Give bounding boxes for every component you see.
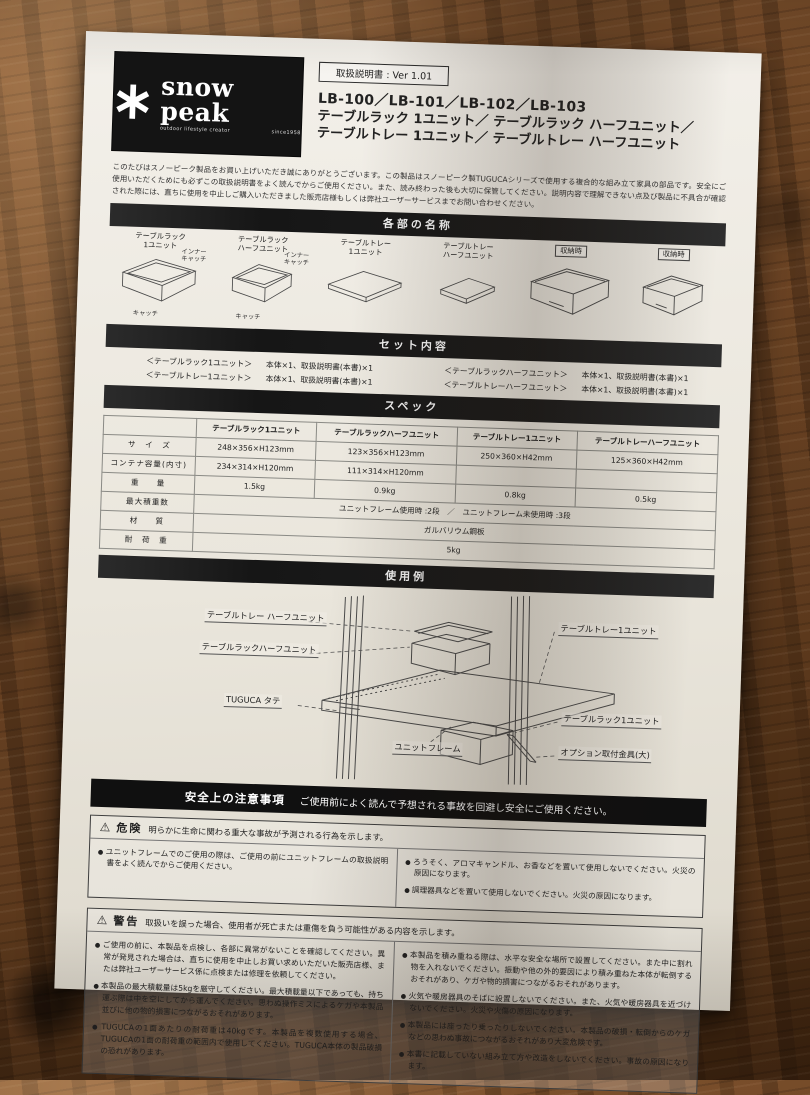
warning-box: ⚠ 警告 取扱いを誤った場合、使用者が死亡または重傷を負う可能性がある内容を示し… <box>82 908 703 1094</box>
stored-badge: 収納時 <box>555 244 587 258</box>
warning-label: 警告 <box>113 913 140 930</box>
set-item-name: ＜テーブルトレーハーフユニット＞ <box>444 379 568 394</box>
safety-title: 安全上の注意事項 <box>185 789 285 806</box>
part-item-stored-small: 収納時 <box>620 246 726 337</box>
warning-triangle-icon: ⚠ <box>96 914 107 926</box>
danger-label: 危険 <box>116 819 143 836</box>
danger-description: 明らかに生命に関わる重大な事故が予測される行為を示します。 <box>148 823 388 843</box>
snowpeak-asterisk-icon <box>113 82 152 121</box>
danger-bullet: 調理器具などを置いて使用しないでください。火災の原因になります。 <box>404 884 695 906</box>
warning-bullet: 本製品を積み重ねる際は、水平な安全な場所で設置してください。また中に割れ物を入れ… <box>401 949 693 994</box>
spec-row-label: 耐 荷 重 <box>99 529 193 551</box>
parts-row: テーブルラック 1ユニット インナーキャッチ キャッチ テーブルラック ハーフユ… <box>107 229 726 337</box>
manual-version-box: 取扱説明書 : Ver 1.01 <box>319 62 450 86</box>
stored-badge: 収納時 <box>657 248 689 262</box>
inner-catch-label: インナーキャッチ <box>181 248 212 265</box>
usage-label-tuguca: TUGUCA タテ <box>224 693 283 709</box>
part-label: ハーフユニット <box>417 249 520 262</box>
set-item-name: ＜テーブルラックハーフユニット＞ <box>444 365 568 380</box>
warning-left-column: ご使用の前に、本製品を点検し、各部に異常がないことを確認してください。異常が発見… <box>83 932 394 1083</box>
warning-bullet: 火気や暖房器具のそばに設置しないでください。また、火気や暖房器具を近づけないでく… <box>400 990 691 1023</box>
tray-flat-figure <box>318 257 412 310</box>
tray-half-flat-figure <box>420 261 514 314</box>
set-item-qty: 本体×1、取扱説明書(本書)×1 <box>581 369 688 384</box>
catch-label: キャッチ <box>235 314 260 323</box>
brand-since: since1958 <box>271 130 300 136</box>
snowpeak-logo: snow peak outdoor lifestyle creator sinc… <box>112 52 303 156</box>
usage-diagram: テーブルトレー ハーフユニット テーブルラックハーフユニット テーブルトレー1ユ… <box>92 580 714 790</box>
logo-wordmark: snow peak outdoor lifestyle creator sinc… <box>160 74 303 137</box>
part-item-tray1: テーブルトレー 1ユニット <box>312 236 418 327</box>
header-titles: 取扱説明書 : Ver 1.01 LB-100／LB-101／LB-102／LB… <box>316 59 731 173</box>
photo-of-manual: { "logo": { "brand": "snow peak", "tagli… <box>0 0 810 1080</box>
safety-subtitle: ご使用前によく読んで予想される事故を回避し安全にご使用ください。 <box>300 796 613 817</box>
catch-label: キャッチ <box>133 310 158 319</box>
danger-box: ⚠ 危険 明らかに生命に関わる重大な事故が予測される行為を示します。 ユニットフ… <box>87 814 705 918</box>
stored-closed-box-small-figure <box>625 262 719 323</box>
part-label: 1ユニット <box>314 246 417 259</box>
spec-table: テーブルラック1ユニット テーブルラックハーフユニット テーブルトレー1ユニット… <box>99 414 719 568</box>
set-item-qty: 本体×1、取扱説明書(本書)×1 <box>581 383 688 398</box>
part-item-rack-half: テーブルラック ハーフユニット インナーキャッチ キャッチ <box>209 233 315 324</box>
warning-bullet: TUGUCAの1面あたりの耐荷重は40kgです。本製品を複数使用する場合、TUG… <box>91 1021 383 1066</box>
usage-label-unit-frame: ユニットフレーム <box>392 740 463 756</box>
danger-bullet: ろうそく、アロマキャンドル、お香などを置いて使用しないでください。火災の原因にな… <box>405 856 696 889</box>
part-item-rack1: テーブルラック 1ユニット インナーキャッチ キャッチ <box>107 229 213 320</box>
part-item-tray-half: テーブルトレー ハーフユニット <box>414 240 520 331</box>
inner-catch-label: インナーキャッチ <box>284 251 315 268</box>
danger-left-column: ユニットフレームでのご使用の際は、ご使用の前にユニットフレームの取扱説明書をよく… <box>88 838 396 907</box>
set-item-qty: 本体×1、取扱説明書(本書)×1 <box>266 359 373 374</box>
warning-right-column: 本製品を積み重ねる際は、水平な安全な場所で設置してください。また中に割れ物を入れ… <box>389 942 701 1093</box>
set-item-name: ＜テーブルラック1ユニット＞ <box>146 355 252 370</box>
danger-bullet: ユニットフレームでのご使用の際は、ご使用の前にユニットフレームの取扱説明書をよく… <box>97 845 388 878</box>
brand-name: snow peak <box>160 74 303 129</box>
manual-paper: snow peak outdoor lifestyle creator sinc… <box>54 31 761 1011</box>
header: snow peak outdoor lifestyle creator sinc… <box>112 52 731 172</box>
stored-closed-box-figure <box>523 259 617 320</box>
danger-right-column: ろうそく、アロマキャンドル、お香などを置いて使用しないでください。火災の原因にな… <box>395 848 704 917</box>
warning-triangle-icon: ⚠ <box>100 820 111 832</box>
warning-bullet: 本書に記載していない組み立て方や改造をしないでください。事故の原因になります。 <box>398 1048 689 1081</box>
warning-bullet: 本製品の最大積載量は5kgを厳守してください。最大積載量以下であっても、持ち運ぶ… <box>92 980 384 1025</box>
warning-bullet: 本製品には座ったり乗ったりしないでください。本製品の破損・転倒からのケガなどの思… <box>399 1019 690 1052</box>
brand-tagline: outdoor lifestyle creator <box>160 127 230 134</box>
set-item-qty: 本体×1、取扱説明書(本書)×1 <box>265 373 372 388</box>
part-item-stored-large: 収納時 <box>517 243 623 334</box>
set-item-name: ＜テーブルトレー1ユニット＞ <box>146 369 252 384</box>
warning-bullet: ご使用の前に、本製品を点検し、各部に異常がないことを確認してください。異常が発見… <box>94 939 386 984</box>
